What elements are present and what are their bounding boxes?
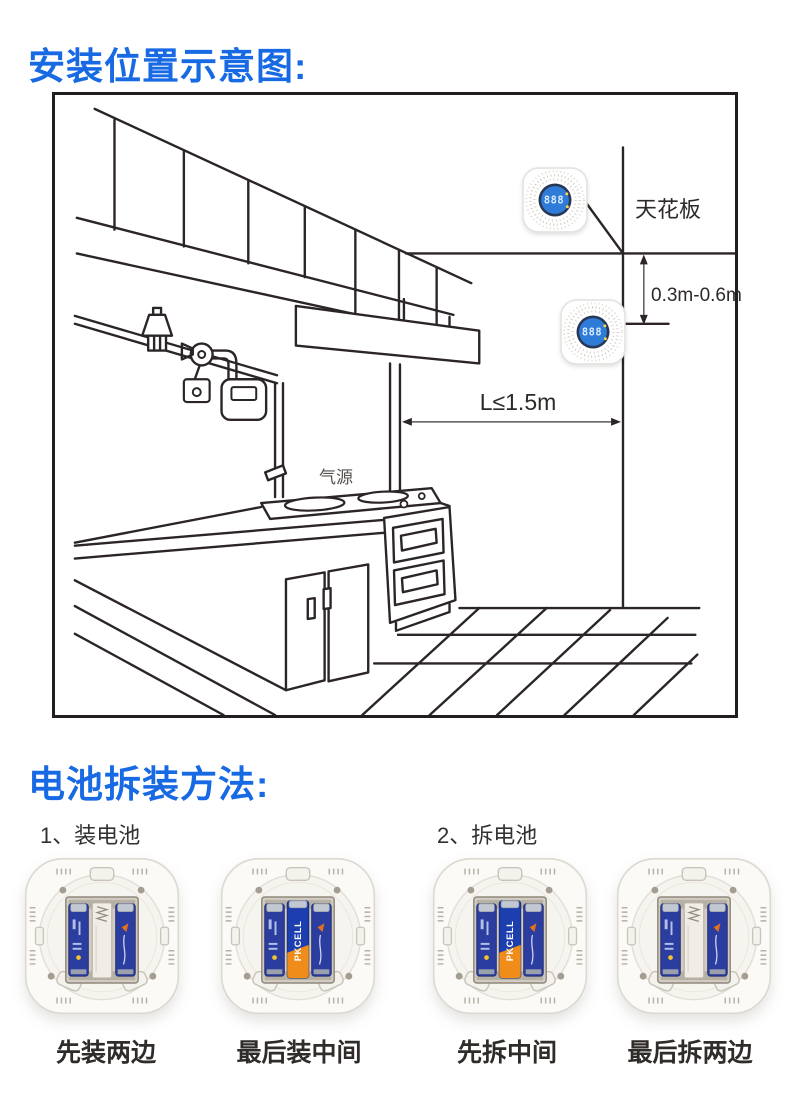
detector-lcd-reading: 888 <box>582 327 602 339</box>
vertical-distance-label: 0.3m-0.6m <box>651 285 742 307</box>
gas-detector-ceiling: 888 <box>521 166 589 234</box>
caption-remove-middle-first: 先拆中间 <box>457 1033 557 1069</box>
device-back-before-remove-middle: PKCELL <box>422 850 598 1028</box>
install-position-title: 安装位置示意图: <box>28 36 307 90</box>
caption-install-middle-last: 最后装中间 <box>236 1033 361 1069</box>
device-back-sides-installed <box>14 850 190 1028</box>
product-instruction-page: 安装位置示意图: <box>0 0 790 1105</box>
horizontal-distance-label: L≤1.5m <box>445 389 591 416</box>
middle-battery-brand: PKCELL <box>293 921 303 962</box>
gas-source-label: 气源 <box>319 463 353 488</box>
step-remove-battery: 2、拆电池 <box>437 818 537 850</box>
middle-battery-brand: PKCELL <box>505 921 515 962</box>
installation-diagram: 888 888 天花板 0.3m-0.6m L≤1.5m 气源 <box>52 92 738 718</box>
caption-remove-sides-last: 最后拆两边 <box>627 1033 752 1069</box>
device-back-middle-removed <box>606 850 782 1028</box>
battery-method-title: 电池拆装方法: <box>28 754 269 808</box>
gas-detector-wall: 888 <box>559 298 627 366</box>
caption-install-sides-first: 先装两边 <box>56 1033 156 1069</box>
step-install-battery: 1、装电池 <box>40 818 140 850</box>
detector-lcd-reading: 888 <box>544 195 564 207</box>
kitchen-line-drawing <box>55 95 735 715</box>
ceiling-label: 天花板 <box>635 192 701 224</box>
device-back-all-installed: PKCELL <box>210 850 386 1028</box>
